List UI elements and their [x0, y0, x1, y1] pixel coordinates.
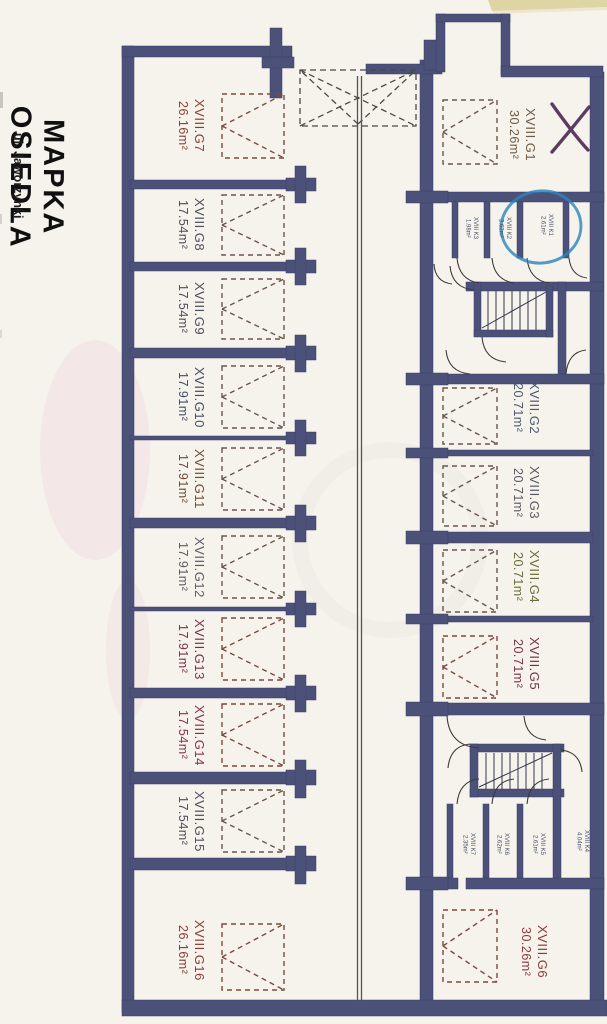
- room-label-xviii-k4: XVIII K44.04m²: [572, 816, 589, 866]
- left-block-piers: [286, 166, 316, 884]
- unit-label-xviii-g5: XVIII.G520.71m²: [502, 618, 542, 710]
- unit-label-xviii-g8: XVIII.G817.54m²: [167, 179, 207, 271]
- unit-label-xviii-g6: XVIII.G630.26m²: [510, 906, 550, 998]
- unit-label-xviii-g15: XVIII.G1517.54m²: [167, 775, 207, 867]
- room-label-xviii-k2: XVIII K22.62m²: [494, 203, 511, 253]
- stairs-top: [482, 291, 546, 330]
- unit-label-xviii-g10: XVIII.G1017.91m²: [167, 351, 207, 443]
- floorplan-page: MAPKA OSIEDLA ul. Jaworzynki XVIII.G726.…: [0, 0, 607, 1024]
- left-garage-block-walls: [122, 28, 316, 1012]
- room-label-xviii-k6: XVIII K62.62m²: [492, 819, 509, 869]
- unit-label-xviii-g12: XVIII.G1217.91m²: [167, 521, 207, 613]
- unit-label-xviii-g1: XVIII.G130.26m²: [498, 89, 538, 181]
- unit-label-xviii-g9: XVIII.G917.54m²: [167, 263, 207, 355]
- unit-label-xviii-g11: XVIII.G1117.91m²: [167, 433, 207, 525]
- unit-label-xviii-g7: XVIII.G726.16m²: [167, 80, 207, 172]
- unit-label-xviii-g14: XVIII.G1417.54m²: [167, 689, 207, 781]
- bottom-wall: [122, 1000, 607, 1016]
- room-label-xviii-k7: XVIII K72.35m²: [458, 819, 475, 869]
- unit-label-xviii-g2: XVIII.G220.71m²: [502, 362, 542, 454]
- page-subtitle: ul. Jaworzynki: [3, 116, 25, 236]
- hand-drawn-x-mark: [552, 104, 589, 152]
- unit-label-xviii-g16: XVIII.G1626.16m²: [167, 904, 207, 996]
- unit-label-xviii-g4: XVIII.G420.71m²: [502, 531, 542, 623]
- room-label-xviii-k1: XVIII K12.61m²: [536, 200, 553, 250]
- room-label-xviii-k5: XVIII K52.61m²: [528, 819, 545, 869]
- unit-label-xviii-g3: XVIII.G320.71m²: [502, 447, 542, 539]
- stairs-bottom: [479, 753, 552, 789]
- room-label-xviii-k3: XVIII K31.98m²: [461, 203, 478, 253]
- corridor-centerline: [358, 76, 362, 1002]
- page-title: MAPKA OSIEDLA: [24, 52, 70, 302]
- unit-label-xviii-g13: XVIII.G1317.91m²: [167, 603, 207, 695]
